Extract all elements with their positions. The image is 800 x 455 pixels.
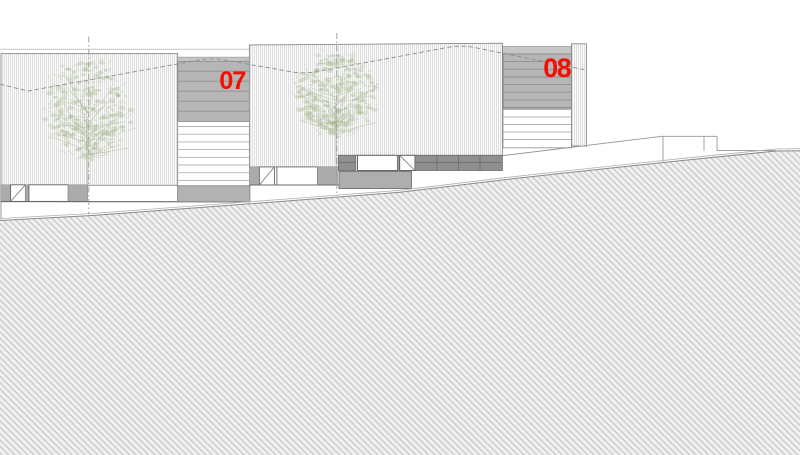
svg-text:07: 07: [219, 67, 245, 95]
svg-text:08: 08: [543, 53, 572, 83]
